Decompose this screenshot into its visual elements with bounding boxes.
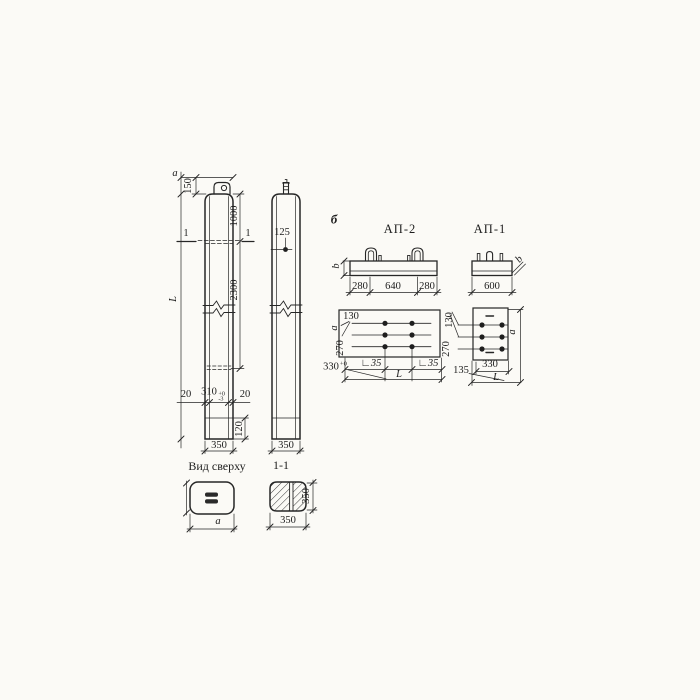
dim-2300: 2300	[229, 280, 240, 301]
break-mark	[270, 301, 302, 309]
section-title: 1-1	[273, 459, 289, 471]
ap2-plan-dim-130: 130	[343, 311, 359, 322]
drawing-linework	[0, 0, 700, 700]
top-view-width-label: a	[215, 517, 220, 528]
dim-wall-left: 20	[181, 390, 192, 401]
lifting-loop	[487, 252, 493, 261]
lifting-loop	[412, 248, 423, 261]
ap2-plan-angle-left: ∟35	[361, 359, 382, 370]
break-mark	[270, 309, 302, 317]
ap2-plan-dim-330: 330+0	[323, 361, 347, 373]
section-mark-right: 1	[245, 229, 250, 240]
dim-150: 150	[184, 178, 195, 194]
dimension-ticks	[178, 175, 524, 533]
lifting-loop	[366, 248, 377, 261]
dim-350-pole-left: 350	[211, 440, 227, 451]
ap1-plan-dim-135: 135	[453, 366, 469, 377]
bolt	[408, 256, 410, 262]
ap2-dim-280-left: 280	[352, 281, 368, 292]
ap1-plan-dim-270: 270	[442, 341, 453, 357]
top-stud	[284, 183, 289, 195]
bolt	[379, 256, 381, 262]
ap1-plan-width-label: a	[508, 329, 519, 334]
dim-310-tolerance: 310+0-3	[201, 388, 225, 403]
top-view-title: Вид сверху	[188, 460, 245, 472]
detail-marker: б	[331, 213, 338, 226]
ap1-plan-dim-330: 330	[482, 360, 498, 371]
lifting-eye-hole	[221, 185, 226, 190]
loop-mark	[205, 499, 218, 503]
top-view-drawing	[187, 481, 238, 532]
ap2-plan-length-label: L	[396, 369, 402, 380]
break-mark	[203, 309, 235, 317]
pole-width-label: a	[172, 169, 177, 180]
ap1-plan-dim-130: 130	[445, 312, 456, 328]
dim-wall-right: 20	[240, 390, 251, 401]
ap2-dim-280-right: 280	[419, 281, 435, 292]
section-dim-bottom: 350	[280, 515, 296, 526]
dim-125: 125	[274, 227, 290, 238]
ap2-dim-640: 640	[385, 281, 401, 292]
ap2-plan-width-label: a	[329, 325, 340, 330]
section-mark-left: 1	[183, 229, 188, 240]
bolt	[500, 254, 503, 262]
ap2-plan-angle-right: ∟35	[418, 359, 439, 370]
dim-1000: 1000	[229, 206, 240, 227]
dim-120: 120	[234, 421, 245, 437]
ap1-title: АП-1	[474, 223, 506, 236]
section-dim-side: 350	[302, 488, 313, 504]
loop-mark	[205, 493, 218, 497]
pole-right-dimensions	[268, 238, 304, 454]
bolt	[477, 254, 480, 262]
ap2-plan-dim-270: 270	[336, 340, 347, 356]
break-mark	[203, 301, 235, 309]
pole-length-label: L	[169, 296, 180, 302]
ap2-height-label: b	[332, 263, 343, 268]
ap1-plan-length-label: L	[493, 373, 499, 384]
pole-right-elevation	[270, 180, 302, 439]
ap2-title: АП-2	[384, 223, 416, 236]
ap1-dim-600: 600	[484, 281, 500, 292]
technical-drawing-page: a 150 L 1 1 1000 2300 20 310+0-3 20 120 …	[0, 0, 700, 700]
dim-350-pole-right: 350	[278, 440, 294, 451]
leader-330	[348, 370, 386, 379]
